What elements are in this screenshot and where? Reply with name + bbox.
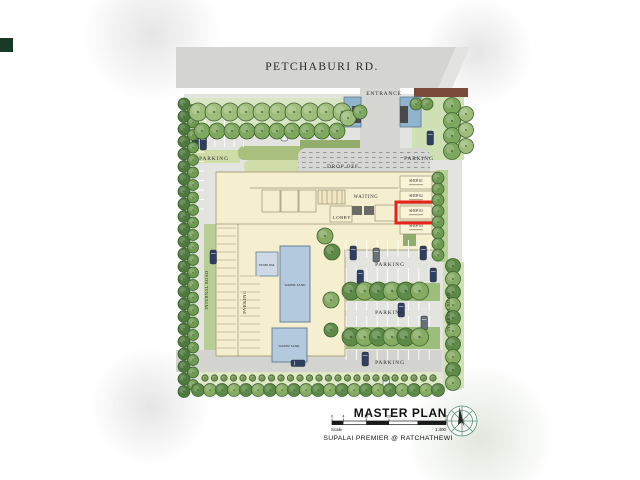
pump-room-label: PUMP RM. — [259, 263, 275, 267]
drop-off-label: DROP OFF — [327, 164, 359, 170]
parking-row3-label: PARKING — [375, 360, 405, 366]
tree-icon — [221, 103, 239, 121]
tree-icon — [188, 180, 199, 191]
tree-icon — [259, 375, 265, 381]
tree-icon — [335, 375, 341, 381]
corner-mark — [0, 38, 13, 52]
scale-label: Scale — [331, 427, 343, 432]
tree-icon — [316, 375, 322, 381]
tree-icon — [323, 292, 339, 308]
tree-icon — [299, 123, 315, 139]
parking-right-label: PARKING — [404, 156, 434, 162]
tree-icon — [237, 103, 255, 121]
car-icon — [210, 250, 217, 264]
tree-icon — [314, 123, 330, 139]
tree-icon — [348, 384, 361, 397]
tree-icon — [432, 172, 444, 184]
tree-icon — [408, 384, 421, 397]
tree-icon — [188, 305, 199, 316]
tree-icon — [459, 107, 474, 122]
tree-icon — [269, 123, 285, 139]
tree-icon — [188, 255, 199, 266]
parking-building-label: PARKING — [242, 290, 247, 314]
tree-icon — [300, 384, 313, 397]
tree-icon — [411, 282, 429, 300]
tree-icon — [249, 375, 255, 381]
tree-icon — [188, 355, 199, 366]
car-icon — [362, 352, 369, 366]
car-icon — [350, 246, 357, 260]
tree-icon — [204, 384, 217, 397]
tree-icon — [188, 155, 199, 166]
tree-icon — [306, 375, 312, 381]
car-icon — [430, 268, 437, 282]
tree-icon — [432, 183, 444, 195]
boundary-wall — [414, 88, 468, 97]
tree-icon — [211, 375, 217, 381]
tree-icon — [432, 249, 444, 261]
tree-icon — [253, 103, 271, 121]
tree-icon — [336, 384, 349, 397]
tree-icon — [317, 103, 335, 121]
tree-icon — [432, 194, 444, 206]
tree-icon — [230, 375, 236, 381]
road-name: PETCHABURI RD. — [265, 61, 379, 73]
tree-icon — [278, 375, 284, 381]
tree-icon — [444, 113, 461, 130]
tree-icon — [224, 123, 240, 139]
tree-icon — [202, 375, 208, 381]
shop-unit-label: SHOP 02 — [409, 194, 423, 198]
parking-row1-label: PARKING — [375, 262, 405, 268]
tree-icon — [444, 128, 461, 145]
water-tank-upper-label: WATER TANK — [284, 283, 306, 287]
tree-icon — [188, 267, 199, 278]
tree-icon — [194, 123, 210, 139]
tree-icon — [360, 384, 373, 397]
tree-icon — [329, 123, 345, 139]
tree-icon — [353, 105, 367, 119]
parking-row2-label: PARKING — [375, 310, 405, 316]
tree-icon — [254, 123, 270, 139]
scale-tick: 12 — [364, 415, 368, 419]
tree-icon — [411, 375, 417, 381]
tree-icon — [188, 230, 199, 241]
project-name: SUPALAI PREMIER @ RATCHATHEWI — [323, 435, 452, 442]
tree-icon — [354, 375, 360, 381]
tree-icon — [410, 98, 422, 110]
scale-value: 1:400 — [435, 427, 447, 432]
car-icon — [420, 246, 427, 260]
tree-icon — [239, 123, 255, 139]
elevator-core — [352, 206, 362, 215]
tree-icon — [188, 292, 199, 303]
tree-icon — [240, 375, 246, 381]
tree-icon — [209, 123, 225, 139]
shop-unit[interactable]: SHOP 01 — [400, 176, 432, 189]
tree-icon — [188, 217, 199, 228]
tree-icon — [372, 384, 385, 397]
tree-icon — [301, 103, 319, 121]
tree-icon — [188, 280, 199, 291]
tree-icon — [401, 375, 407, 381]
tree-icon — [288, 384, 301, 397]
tree-icon — [188, 330, 199, 341]
entrance-label: ENTRANCE — [366, 91, 401, 97]
tree-icon — [444, 98, 461, 115]
tree-icon — [252, 384, 265, 397]
tree-icon — [446, 376, 461, 391]
tree-icon — [188, 192, 199, 203]
tree-icon — [192, 384, 205, 397]
tree-icon — [276, 384, 289, 397]
tree-icon — [221, 375, 227, 381]
tree-icon — [444, 143, 461, 160]
car-icon — [427, 131, 434, 145]
tree-icon — [420, 384, 433, 397]
tree-icon — [432, 227, 444, 239]
tree-icon — [324, 323, 338, 337]
tree-icon — [324, 244, 340, 260]
tree-icon — [287, 375, 293, 381]
tree-icon — [344, 375, 350, 381]
scale-tick: 0 — [331, 415, 333, 419]
shop-unit-label: SHOP 03 — [409, 209, 423, 213]
waiting-label: WAITING — [354, 195, 379, 200]
tree-icon — [411, 328, 429, 346]
tree-icon — [189, 103, 207, 121]
tree-icon — [420, 375, 426, 381]
tree-icon — [297, 375, 303, 381]
car-icon — [373, 248, 380, 262]
petchaburi-road: PETCHABURI RD. — [176, 47, 470, 88]
tree-icon — [188, 317, 199, 328]
shop-unit-label: SHOP 01 — [409, 179, 423, 183]
tree-icon — [421, 98, 433, 110]
tree-icon — [240, 384, 253, 397]
tree-icon — [384, 384, 397, 397]
tree-icon — [269, 103, 287, 121]
shop-unit-label: SHOP 04 — [409, 224, 423, 228]
internal-road-west-label: INTERNAL ROAD — [204, 271, 209, 310]
tree-icon — [392, 375, 398, 381]
tree-icon — [363, 375, 369, 381]
tree-icon — [188, 342, 199, 353]
tree-icon — [432, 205, 444, 217]
tree-icon — [216, 384, 229, 397]
internal-road-east-label: INTERNAL ROAD — [446, 293, 451, 332]
tree-icon — [459, 139, 474, 154]
water-tank-lower-label: WATER TANK — [278, 344, 300, 348]
tree-icon — [317, 228, 333, 244]
tree-icon — [205, 103, 223, 121]
tree-icon — [228, 384, 241, 397]
car-icon — [421, 316, 428, 330]
scale-tick: 20 — [387, 415, 391, 419]
parking-left-label: PARKING — [199, 156, 229, 162]
tree-icon — [324, 384, 337, 397]
tree-icon — [459, 123, 474, 138]
lobby-label: LOBBY — [333, 215, 351, 220]
elevator-core — [364, 206, 374, 215]
tree-icon — [325, 375, 331, 381]
tree-icon — [432, 384, 445, 397]
tree-icon — [430, 375, 436, 381]
tree-icon — [268, 375, 274, 381]
car-icon — [291, 360, 305, 367]
tree-icon — [188, 167, 199, 178]
tree-icon — [312, 384, 325, 397]
tree-icon — [264, 384, 277, 397]
shop-unit-selected[interactable]: SHOP 03 — [400, 206, 432, 219]
scale-tick: 4 — [342, 415, 344, 419]
garden-pocket — [403, 233, 416, 246]
stair-core — [318, 190, 345, 204]
tree-icon — [432, 238, 444, 250]
tree-icon — [432, 216, 444, 228]
tree-icon — [188, 142, 199, 153]
master-plan-canvas: PETCHABURI RD. ENTRANCE — [0, 0, 640, 480]
tree-icon — [396, 384, 409, 397]
tree-icon — [284, 123, 300, 139]
compass-rose-icon — [447, 406, 477, 436]
guard-house-east — [400, 106, 408, 123]
tree-icon — [188, 242, 199, 253]
tree-icon — [188, 205, 199, 216]
tree-icon — [382, 375, 388, 381]
tree-icon — [373, 375, 379, 381]
tree-icon — [188, 367, 199, 378]
tree-icon — [285, 103, 303, 121]
